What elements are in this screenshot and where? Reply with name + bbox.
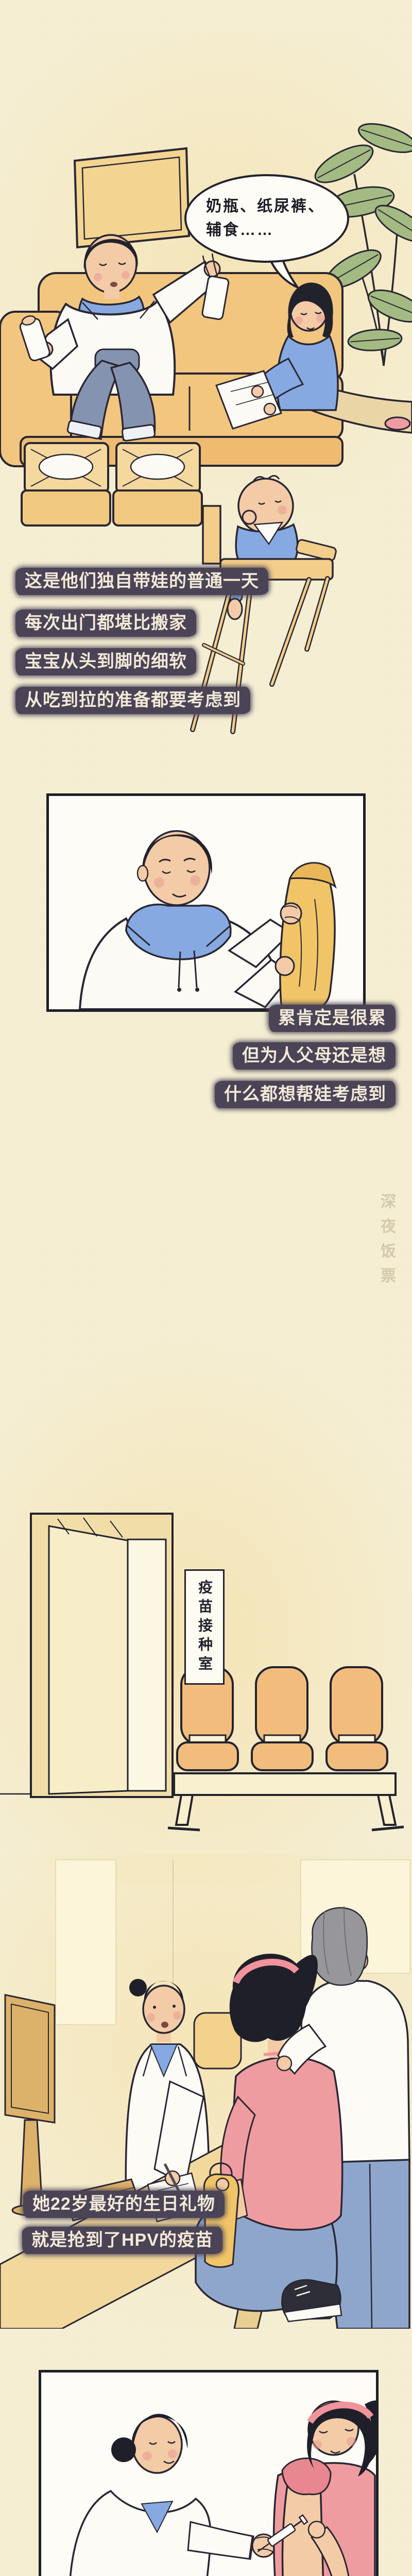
- caption-strip: 这是他们独自带娃的普通一天: [15, 568, 268, 595]
- speech-line-2: 辅食……: [206, 218, 274, 243]
- vaccination-room-sign: 疫苗接种室: [184, 1569, 225, 1685]
- waiting-chair: [252, 1667, 313, 1770]
- panel-father-closeup: [46, 793, 366, 1012]
- caption-strip: 累肯定是很累: [269, 1005, 396, 1032]
- clinic-hallway-illustration: [0, 1510, 412, 1880]
- suitcase-left: [22, 443, 110, 526]
- waiting-bench: [168, 1667, 404, 1830]
- suitcase-right: [113, 443, 202, 526]
- waiting-chair: [327, 1667, 387, 1770]
- caption-strip: 她22岁最好的生日礼物: [23, 2191, 225, 2218]
- comic-page: 奶瓶、纸尿裤、 辅食…… 这是他们独自带娃的普通一天 每次出门都堪比搬家 宝宝从…: [0, 0, 412, 2576]
- speech-line-1: 奶瓶、纸尿裤、: [206, 195, 325, 219]
- panel-vaccination-closeup: [39, 2370, 379, 2576]
- caption-strip: 每次出门都堪比搬家: [15, 609, 196, 637]
- caption-strip: 但为人父母还是想: [233, 1042, 396, 1070]
- caption-strip: 宝宝从头到脚的细软: [15, 648, 196, 675]
- caption-strip: 从吃到拉的准备都要考虑到: [15, 687, 250, 714]
- father-closeup-illustration: [49, 796, 363, 1009]
- caption-strip: 什么都想帮娃考虑到: [215, 1081, 396, 1108]
- nurse-figure: [70, 2414, 275, 2576]
- vertical-watermark: 深夜饭票: [375, 1193, 398, 1292]
- doctor-office-illustration: [0, 1855, 412, 2329]
- caption-strip: 就是抢到了HPV的疫苗: [22, 2227, 222, 2254]
- open-door: [0, 1514, 173, 1797]
- vaccination-illustration: [41, 2372, 376, 2576]
- speech-bubble: 奶瓶、纸尿裤、 辅食……: [184, 174, 349, 263]
- picture-frame: [75, 148, 189, 247]
- computer-monitor: [5, 1995, 55, 2215]
- patient-arm-figure: [274, 2400, 376, 2576]
